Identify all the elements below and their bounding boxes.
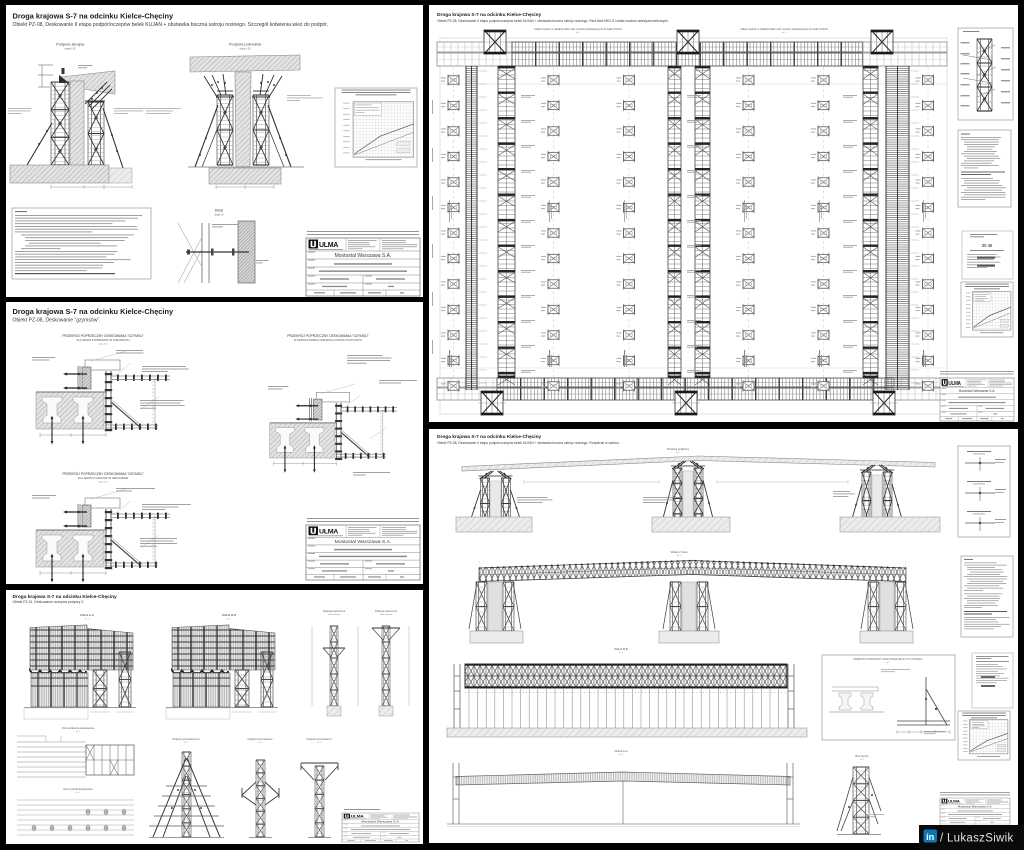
- svg-text:W WNĘCE NOWEGO WIESZAKA KONSOL: W WNĘCE NOWEGO WIESZAKA KONSOLI PODSUFIT…: [294, 338, 362, 342]
- svg-text:skala 1:5: skala 1:5: [214, 215, 224, 217]
- svg-text:Przekrój podłużny: Przekrój podłużny: [667, 447, 690, 451]
- svg-text:Podpora tymczasowa 2: Podpora tymczasowa 2: [248, 738, 274, 741]
- svg-text:PRZEKRÓJ POPRZECZNY DESKOWANIA: PRZEKRÓJ POPRZECZNY DESKOWANIA "GZYMSU": [62, 333, 144, 338]
- svg-text:układ zachodni: układ zachodni: [328, 614, 341, 616]
- svg-text:PRZEKRÓJ POPRZECZNY DESKOWANIA: PRZEKRÓJ POPRZECZNY DESKOWANIA "GZYMSU": [62, 471, 144, 476]
- svg-text:Droga krajowa S-7 na odcinku K: Droga krajowa S-7 na odcinku Kielce-Chęc…: [437, 12, 542, 18]
- svg-text:sk. 1:: sk. 1:: [184, 742, 189, 744]
- svg-text:Widok A-A: Widok A-A: [614, 749, 627, 753]
- svg-text:sk. 1:: sk. 1:: [676, 452, 681, 454]
- svg-text:Mostostal Warszawa S.A.: Mostostal Warszawa S.A.: [958, 805, 993, 809]
- svg-text:Mostostal Warszawa S.A.: Mostostal Warszawa S.A.: [335, 539, 392, 545]
- svg-text:sk. 1:: sk. 1:: [317, 742, 322, 744]
- svg-text:sk. 1:: sk. 1:: [782, 32, 787, 34]
- svg-text:Widok B-B: Widok B-B: [222, 613, 236, 617]
- svg-text:Podpora poprzeczna: Podpora poprzeczna: [323, 610, 346, 613]
- svg-text:Widok z boku: Widok z boku: [671, 550, 688, 554]
- svg-text:Widok B-B: Widok B-B: [614, 647, 627, 651]
- svg-text:sk. 1:: sk. 1:: [619, 652, 624, 654]
- svg-text:Detal: Detal: [215, 209, 224, 213]
- svg-text:Mostostal Warszawa S.A.: Mostostal Warszawa S.A.: [335, 253, 392, 259]
- svg-text:Rzut boczny: Rzut boczny: [855, 755, 869, 758]
- svg-text:Mostostal Warszawa S.A.: Mostostal Warszawa S.A.: [959, 389, 996, 393]
- svg-text:Podpora tymczasowa 1x1: Podpora tymczasowa 1x1: [172, 738, 200, 741]
- svg-text:DLA JEZDNI Z DANKOWYM NIEZJAZD: DLA JEZDNI Z DANKOWYM NIEZJAZDEM: [78, 476, 128, 480]
- svg-text:Układ rusztów w układzie MK2 o: Układ rusztów w układzie MK2 oraz rusztó…: [534, 27, 621, 31]
- svg-text:/ LukaszSiwik: / LukaszSiwik: [940, 833, 1014, 845]
- svg-text:sk. 1:: sk. 1:: [619, 754, 624, 756]
- svg-text:Obiekt PZ-08, Deskowanie II et: Obiekt PZ-08, Deskowanie II etapu podpór…: [437, 441, 620, 445]
- svg-text:Podpora poprzeczna: Podpora poprzeczna: [375, 610, 398, 613]
- svg-text:Droga krajowa S-7 na odcinku K: Droga krajowa S-7 na odcinku Kielce-Chęc…: [13, 12, 174, 21]
- svg-text:Mostostal Warszawa S.A.: Mostostal Warszawa S.A.: [361, 820, 400, 823]
- svg-text:skala 1:50: skala 1:50: [65, 48, 77, 51]
- svg-text:ULMA: ULMA: [948, 799, 960, 803]
- svg-text:PRZEKRÓJ POPRZECZNY DESKOWANIA: PRZEKRÓJ POPRZECZNY DESKOWANIA BELKI W F…: [854, 658, 923, 661]
- svg-text:sk. 1:: sk. 1:: [85, 618, 90, 620]
- svg-text:Obiekt PZ-08, Deskowanie II et: Obiekt PZ-08, Deskowanie II etapu podpór…: [13, 22, 329, 28]
- svg-text:sk. 1:: sk. 1:: [258, 742, 263, 744]
- svg-text:ULMA: ULMA: [948, 381, 961, 387]
- svg-text:Obiekt PZ-08, Deskowanie “gzym: Obiekt PZ-08, Deskowanie “gzymsów”.: [13, 318, 101, 324]
- svg-text:skala 1:50: skala 1:50: [240, 48, 252, 51]
- svg-text:Rzut oparcia deskowania: Rzut oparcia deskowania: [64, 787, 94, 791]
- svg-text:sk. 1:: sk. 1:: [76, 792, 81, 794]
- svg-text:Widok A-A: Widok A-A: [80, 613, 94, 617]
- svg-text:sk. 1:: sk. 1:: [76, 731, 81, 733]
- svg-text:sk. 1:: sk. 1:: [227, 618, 232, 620]
- svg-text:ULMA: ULMA: [319, 242, 338, 249]
- svg-text:Droga krajowa S-7 na odcinku K: Droga krajowa S-7 na odcinku Kielce-Chęc…: [13, 307, 174, 316]
- svg-text:in: in: [926, 832, 935, 842]
- svg-text:30 40: 30 40: [982, 243, 993, 248]
- svg-text:sk. 1:: sk. 1:: [576, 32, 581, 34]
- svg-text:Obiekt PZ-08, Deskowanie II et: Obiekt PZ-08, Deskowanie II etapu podpór…: [437, 19, 669, 23]
- svg-text:układ wschodni: układ wschodni: [380, 614, 393, 616]
- svg-text:sk. 1:: sk. 1:: [860, 759, 865, 761]
- svg-text:sk. 1:: sk. 1:: [886, 662, 891, 664]
- svg-text:ULMA: ULMA: [351, 814, 364, 818]
- svg-text:Rzut podparcia deskowania: Rzut podparcia deskowania: [62, 726, 94, 730]
- svg-text:Układ rusztów w układzie MK2 o: Układ rusztów w układzie MK2 oraz rusztó…: [740, 27, 827, 31]
- svg-text:PRZEKRÓJ POPRZECZNY DESKOWANIA: PRZEKRÓJ POPRZECZNY DESKOWANIA "GZYMSU": [287, 333, 369, 338]
- svg-text:ULMA: ULMA: [319, 529, 338, 536]
- svg-text:Obiekt PZ-01, Deskowanie oczep: Obiekt PZ-01, Deskowanie oczepów podpory…: [13, 600, 85, 604]
- svg-text:Podpora tymczasowa 3: Podpora tymczasowa 3: [307, 738, 333, 741]
- svg-text:Droga krajowa S-7 na odcinku K: Droga krajowa S-7 na odcinku Kielce-Chęc…: [437, 434, 542, 440]
- svg-text:skala 1:10: skala 1:10: [98, 344, 108, 346]
- svg-text:sk. 1:: sk. 1:: [677, 555, 682, 557]
- svg-text:Podpora pośrednia: Podpora pośrednia: [229, 43, 262, 47]
- svg-text:skala 1:10: skala 1:10: [98, 482, 108, 484]
- svg-text:Podpora skrajna: Podpora skrajna: [56, 43, 85, 47]
